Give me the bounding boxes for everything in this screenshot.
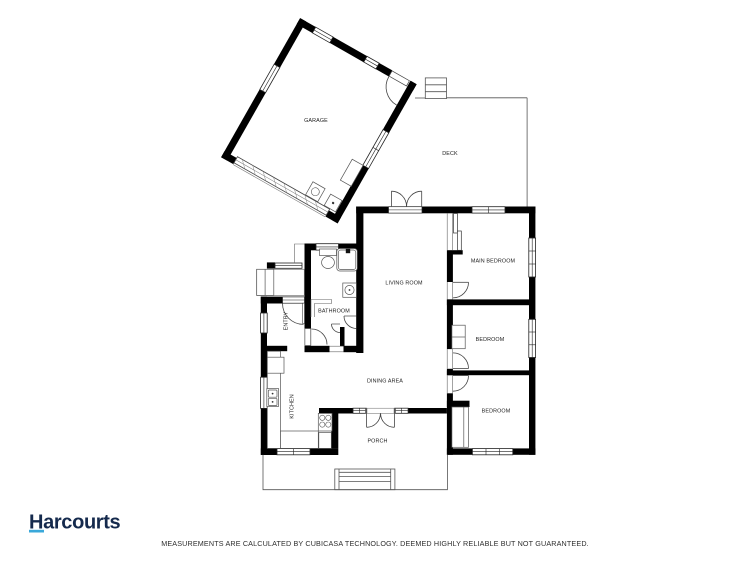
svg-text:BATHROOM: BATHROOM	[318, 309, 350, 315]
svg-text:DECK: DECK	[442, 151, 458, 157]
svg-text:ENTRY: ENTRY	[284, 311, 290, 330]
svg-text:BEDROOM: BEDROOM	[482, 409, 511, 415]
svg-text:PORCH: PORCH	[367, 439, 387, 445]
svg-text:GARAGE: GARAGE	[304, 118, 328, 124]
svg-text:KITCHEN: KITCHEN	[290, 394, 296, 419]
svg-text:LIVING ROOM: LIVING ROOM	[385, 281, 423, 287]
svg-text:DINING AREA: DINING AREA	[367, 379, 403, 385]
svg-text:MAIN BEDROOM: MAIN BEDROOM	[471, 259, 516, 265]
svg-text:MEASUREMENTS ARE CALCULATED BY: MEASUREMENTS ARE CALCULATED BY CUBICASA …	[161, 539, 589, 548]
svg-text:BEDROOM: BEDROOM	[476, 337, 505, 343]
